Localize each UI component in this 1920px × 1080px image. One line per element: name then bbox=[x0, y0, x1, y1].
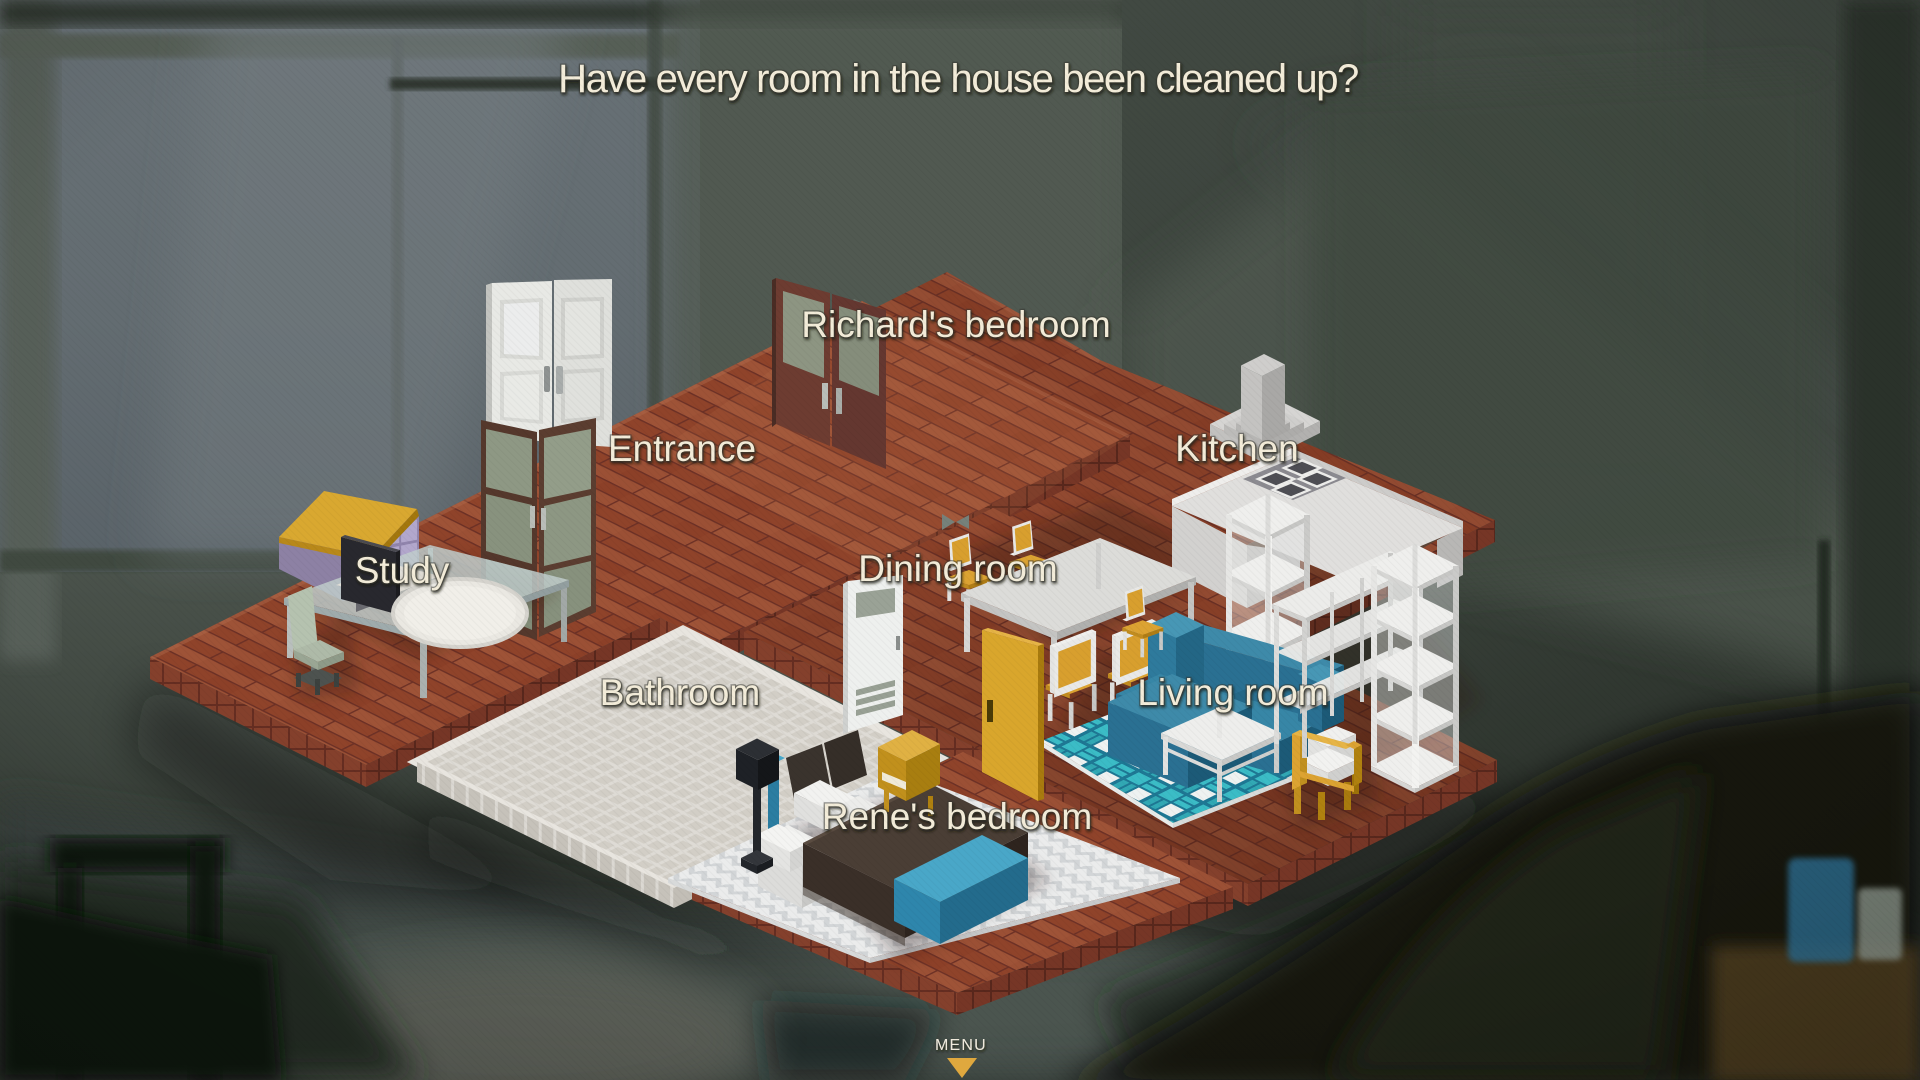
svg-text:MENU: MENU bbox=[935, 1037, 987, 1054]
